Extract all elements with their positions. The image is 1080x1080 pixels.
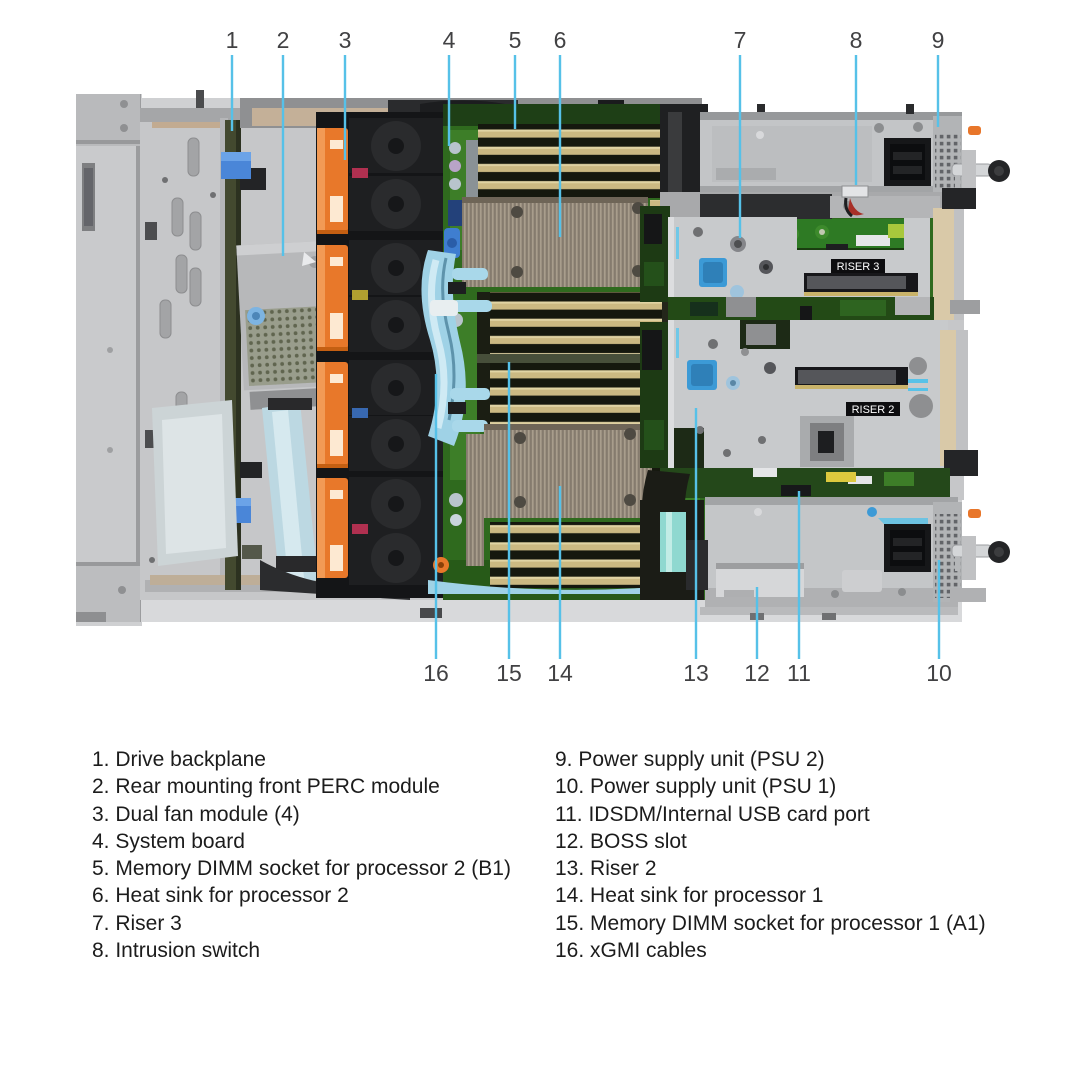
svg-text:5: 5 [509, 27, 522, 53]
svg-text:RISER 2: RISER 2 [852, 404, 895, 416]
svg-text:14: 14 [547, 660, 573, 686]
svg-text:12: 12 [744, 660, 770, 686]
svg-text:3: 3 [339, 27, 352, 53]
svg-text:4: 4 [443, 27, 456, 53]
svg-text:13: 13 [683, 660, 709, 686]
svg-text:1: 1 [226, 27, 239, 53]
svg-text:7: 7 [734, 27, 747, 53]
svg-text:16: 16 [423, 660, 449, 686]
svg-text:8: 8 [850, 27, 863, 53]
svg-text:2: 2 [277, 27, 290, 53]
svg-text:11: 11 [787, 660, 811, 686]
svg-text:6: 6 [554, 27, 567, 53]
svg-text:9: 9 [932, 27, 945, 53]
svg-text:15: 15 [496, 660, 522, 686]
svg-text:RISER 3: RISER 3 [837, 261, 880, 273]
svg-text:10: 10 [926, 660, 952, 686]
